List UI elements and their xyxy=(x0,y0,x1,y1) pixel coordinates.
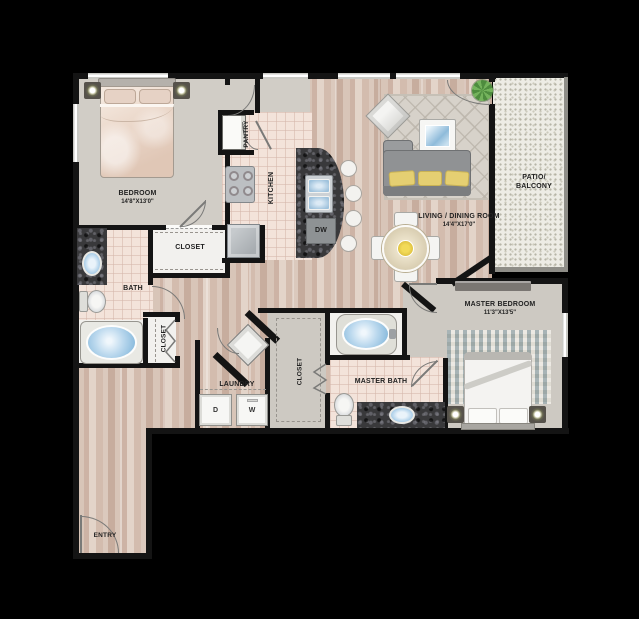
bar-stool-2 xyxy=(345,185,362,202)
sofa-backrest xyxy=(383,186,471,196)
stove-burner-3 xyxy=(229,186,239,196)
stove-burner-1 xyxy=(229,171,239,181)
bar-stool-3 xyxy=(345,210,362,227)
label-bedroom-dims: 14'8"X13'0" xyxy=(90,199,185,207)
nightstand-bedroom-right xyxy=(173,82,190,99)
kitchen-sink-basin-1 xyxy=(308,179,330,193)
master-bed-pillow-left xyxy=(468,408,497,424)
bath-toilet-bowl xyxy=(87,290,106,313)
label-patio: PATIO/ BALCONY xyxy=(505,174,563,192)
nightstand-master-right xyxy=(529,406,546,423)
master-bed-headboard xyxy=(461,423,535,430)
master-bed-pillow-right xyxy=(499,408,528,424)
sofa-pillow-2 xyxy=(418,171,442,186)
floor-patio xyxy=(493,77,565,268)
dishwasher: DW xyxy=(306,218,336,244)
label-pantry: PANTRY xyxy=(243,112,255,156)
wall-entry-bottom xyxy=(73,553,152,559)
kitchen-sink-basin-2 xyxy=(308,196,330,210)
wall-vestibule-right xyxy=(255,73,260,113)
label-living-dining: LIVING / DINING ROOM 14'4"X17'0" xyxy=(415,213,503,229)
label-kitchen: KITCHEN xyxy=(268,158,280,218)
wall-patio-bottom xyxy=(489,267,568,272)
nightstand-bedroom-left xyxy=(84,82,101,99)
bath-sink xyxy=(82,251,102,276)
label-entry: ENTRY xyxy=(82,532,128,540)
wall-mcloset-right-b xyxy=(325,393,330,428)
closet-bedroom-opening xyxy=(166,225,212,229)
bifold-zigzag xyxy=(314,364,326,394)
wall-living-right-b xyxy=(489,104,495,274)
washer-vent xyxy=(247,399,258,402)
wall-closet-bottom xyxy=(148,273,230,278)
label-living-dining-name: LIVING / DINING ROOM xyxy=(415,213,503,222)
master-toilet-tank xyxy=(336,415,352,426)
wall-bath-right xyxy=(148,230,153,285)
wall-mbath-vestibule xyxy=(402,308,407,358)
wall-mbath-top xyxy=(330,308,407,313)
wall-kitchen-bottom xyxy=(222,258,265,263)
dryer: D xyxy=(199,394,232,426)
master-tub-faucet xyxy=(389,329,396,339)
window-living-top-1 xyxy=(338,73,390,79)
wall-bedroom-right-a xyxy=(225,73,230,85)
label-bath: BATH xyxy=(105,285,161,294)
master-dresser xyxy=(455,281,531,291)
master-tub-basin xyxy=(342,318,390,350)
window-master-right xyxy=(562,313,568,357)
window-living-top-2 xyxy=(396,73,460,79)
label-bedroom-name: BEDROOM xyxy=(90,190,185,199)
label-closet-hall: CLOSET xyxy=(161,314,172,364)
bed-pillow-left xyxy=(104,89,136,104)
label-closet-master: CLOSET xyxy=(297,347,308,397)
closet-hall-shelf xyxy=(155,319,157,362)
door-leaf-master-bedroom xyxy=(409,283,437,285)
nightstand-master-left xyxy=(447,406,464,423)
bifold-door-master-closet xyxy=(311,363,328,395)
washer-label: W xyxy=(249,407,256,414)
label-closet-bedroom: CLOSET xyxy=(158,244,222,253)
label-master-bath: MASTER BATH xyxy=(333,378,429,387)
label-living-dining-dims: 14'4"X17'0" xyxy=(415,222,503,230)
label-bedroom: BEDROOM 14'8"X13'0" xyxy=(90,190,185,206)
dishwasher-label: DW xyxy=(315,227,327,236)
bar-stool-4 xyxy=(340,235,357,252)
coffee-table-glass xyxy=(425,125,450,147)
dining-centerpiece xyxy=(397,240,414,257)
dryer-label: D xyxy=(213,407,218,414)
wall-mcloset-top xyxy=(258,308,330,313)
wall-entry-right xyxy=(146,430,152,559)
sofa-pillow-1 xyxy=(389,170,416,187)
floor-plan: DW D W xyxy=(0,0,639,619)
bar-stool-1 xyxy=(340,160,357,177)
sofa-pillow-3 xyxy=(445,170,470,187)
master-bath-sink xyxy=(389,406,415,424)
washer: W xyxy=(236,394,268,426)
wall-patio-top xyxy=(493,73,568,78)
wall-patio-right xyxy=(564,77,568,272)
wall-patio-left-low xyxy=(489,263,495,272)
window-bedroom-left xyxy=(73,104,79,162)
label-master-bedroom-dims: 11'3"X13'5" xyxy=(445,310,555,318)
master-bed-foot-trim xyxy=(464,352,532,360)
master-toilet-bowl xyxy=(334,393,354,417)
label-master-bedroom: MASTER BEDROOM 11'3"X13'5" xyxy=(445,301,555,317)
wall-mbath-mid xyxy=(330,355,410,360)
window-kitchen-top xyxy=(263,73,308,79)
stove-burner-4 xyxy=(243,186,253,196)
bed-pillow-right xyxy=(139,89,171,104)
label-laundry: LAUNDRY xyxy=(199,381,275,390)
kitchen-fridge xyxy=(227,224,260,258)
label-master-bedroom-name: MASTER BEDROOM xyxy=(445,301,555,310)
bath-tub-basin xyxy=(86,325,137,360)
stove-burner-2 xyxy=(243,171,253,181)
wall-tub-right xyxy=(143,318,148,367)
